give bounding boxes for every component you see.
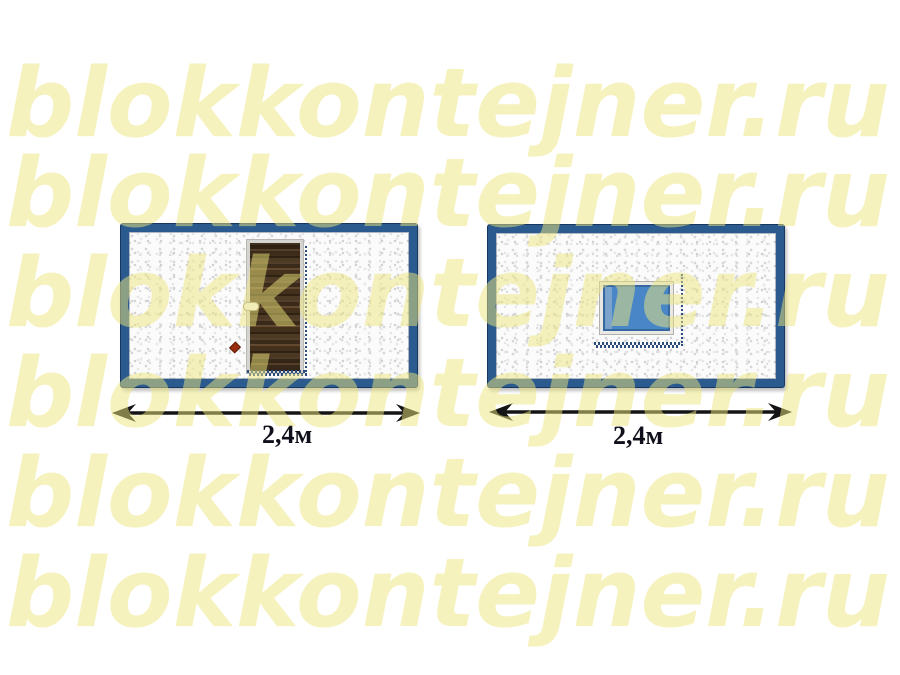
window-marquee-dots-right: [681, 274, 683, 346]
watermark-row: blokkontejner.ru: [6, 539, 890, 649]
right-dimension-label: 2,4м: [613, 423, 663, 449]
watermark-row: blokkontejner.ru: [6, 49, 890, 159]
left-dimension-label: 2,4м: [262, 422, 312, 448]
door-marquee-dots-bottom: [247, 370, 307, 376]
window-glass: [603, 285, 670, 331]
watermark-row: blokkontejner.ru: [6, 439, 890, 549]
door-marquee-dots-right: [305, 246, 307, 376]
door-handle: [243, 302, 259, 311]
watermarked-container-diagram-page: 2,4м 2,4м blokkontejner.ru blokkontejner…: [0, 0, 900, 675]
window-frame: [599, 281, 674, 335]
window-marquee-dots-bottom: [594, 342, 680, 348]
right-dimension-arrow: [487, 401, 794, 423]
